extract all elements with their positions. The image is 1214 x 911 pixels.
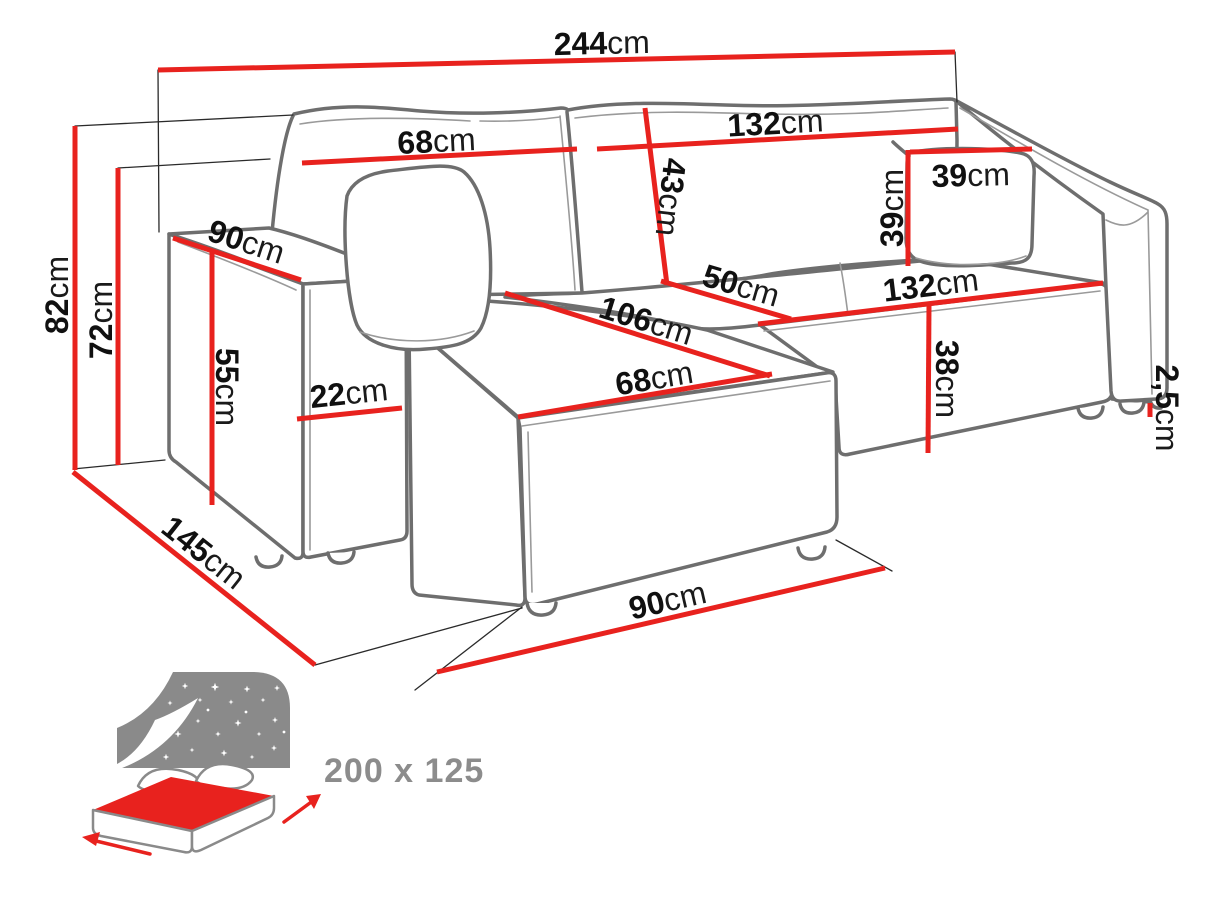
dim-line-seat-height [928, 305, 929, 453]
dim-line-pillow-width [910, 149, 1032, 152]
dim-total-height: 82cm [39, 256, 75, 334]
dim-pillow-height: 39cm [874, 169, 910, 247]
dimension-diagram-page: 244cm 68cm 132cm 43cm 39cm 39cm 82cm 72c… [0, 0, 1214, 911]
dim-seat-height: 38cm [929, 340, 965, 418]
dim-frame-height: 72cm [83, 281, 119, 359]
dim-leg-height: 2,5cm [1149, 364, 1185, 451]
sleeping-area-label: 200 x 125 [324, 752, 484, 790]
pillow-left [345, 166, 491, 349]
dim-front-depth: 90cm [625, 574, 709, 627]
dim-total-width: 244cm [553, 24, 650, 62]
bed-mattress [93, 777, 274, 852]
dim-total-depth: 145cm [155, 508, 253, 596]
sleeping-function-icon: 200 x 125 [82, 672, 484, 854]
dim-backrest-right-width: 132cm [726, 102, 824, 143]
dim-pillow-width: 39cm [931, 156, 1010, 194]
dim-backrest-left-width: 68cm [396, 121, 476, 161]
dim-armrest-height: 55cm [209, 348, 245, 426]
sofa-dimension-drawing: 244cm 68cm 132cm 43cm 39cm 39cm 82cm 72c… [0, 0, 1214, 911]
